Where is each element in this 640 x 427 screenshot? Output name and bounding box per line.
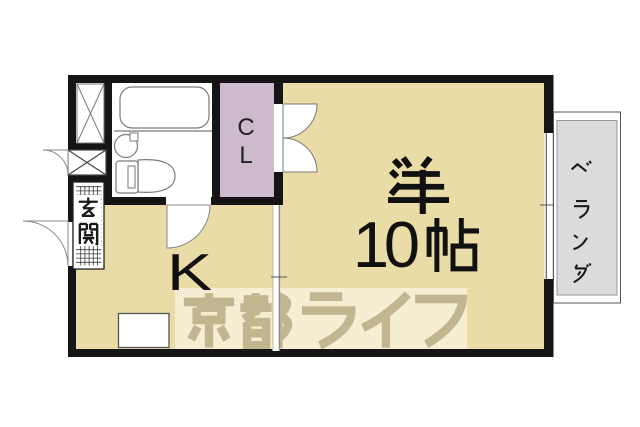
svg-text:K: K (167, 243, 212, 301)
svg-text:C: C (237, 114, 254, 141)
svg-text:0: 0 (384, 208, 420, 281)
svg-text:L: L (239, 142, 252, 169)
